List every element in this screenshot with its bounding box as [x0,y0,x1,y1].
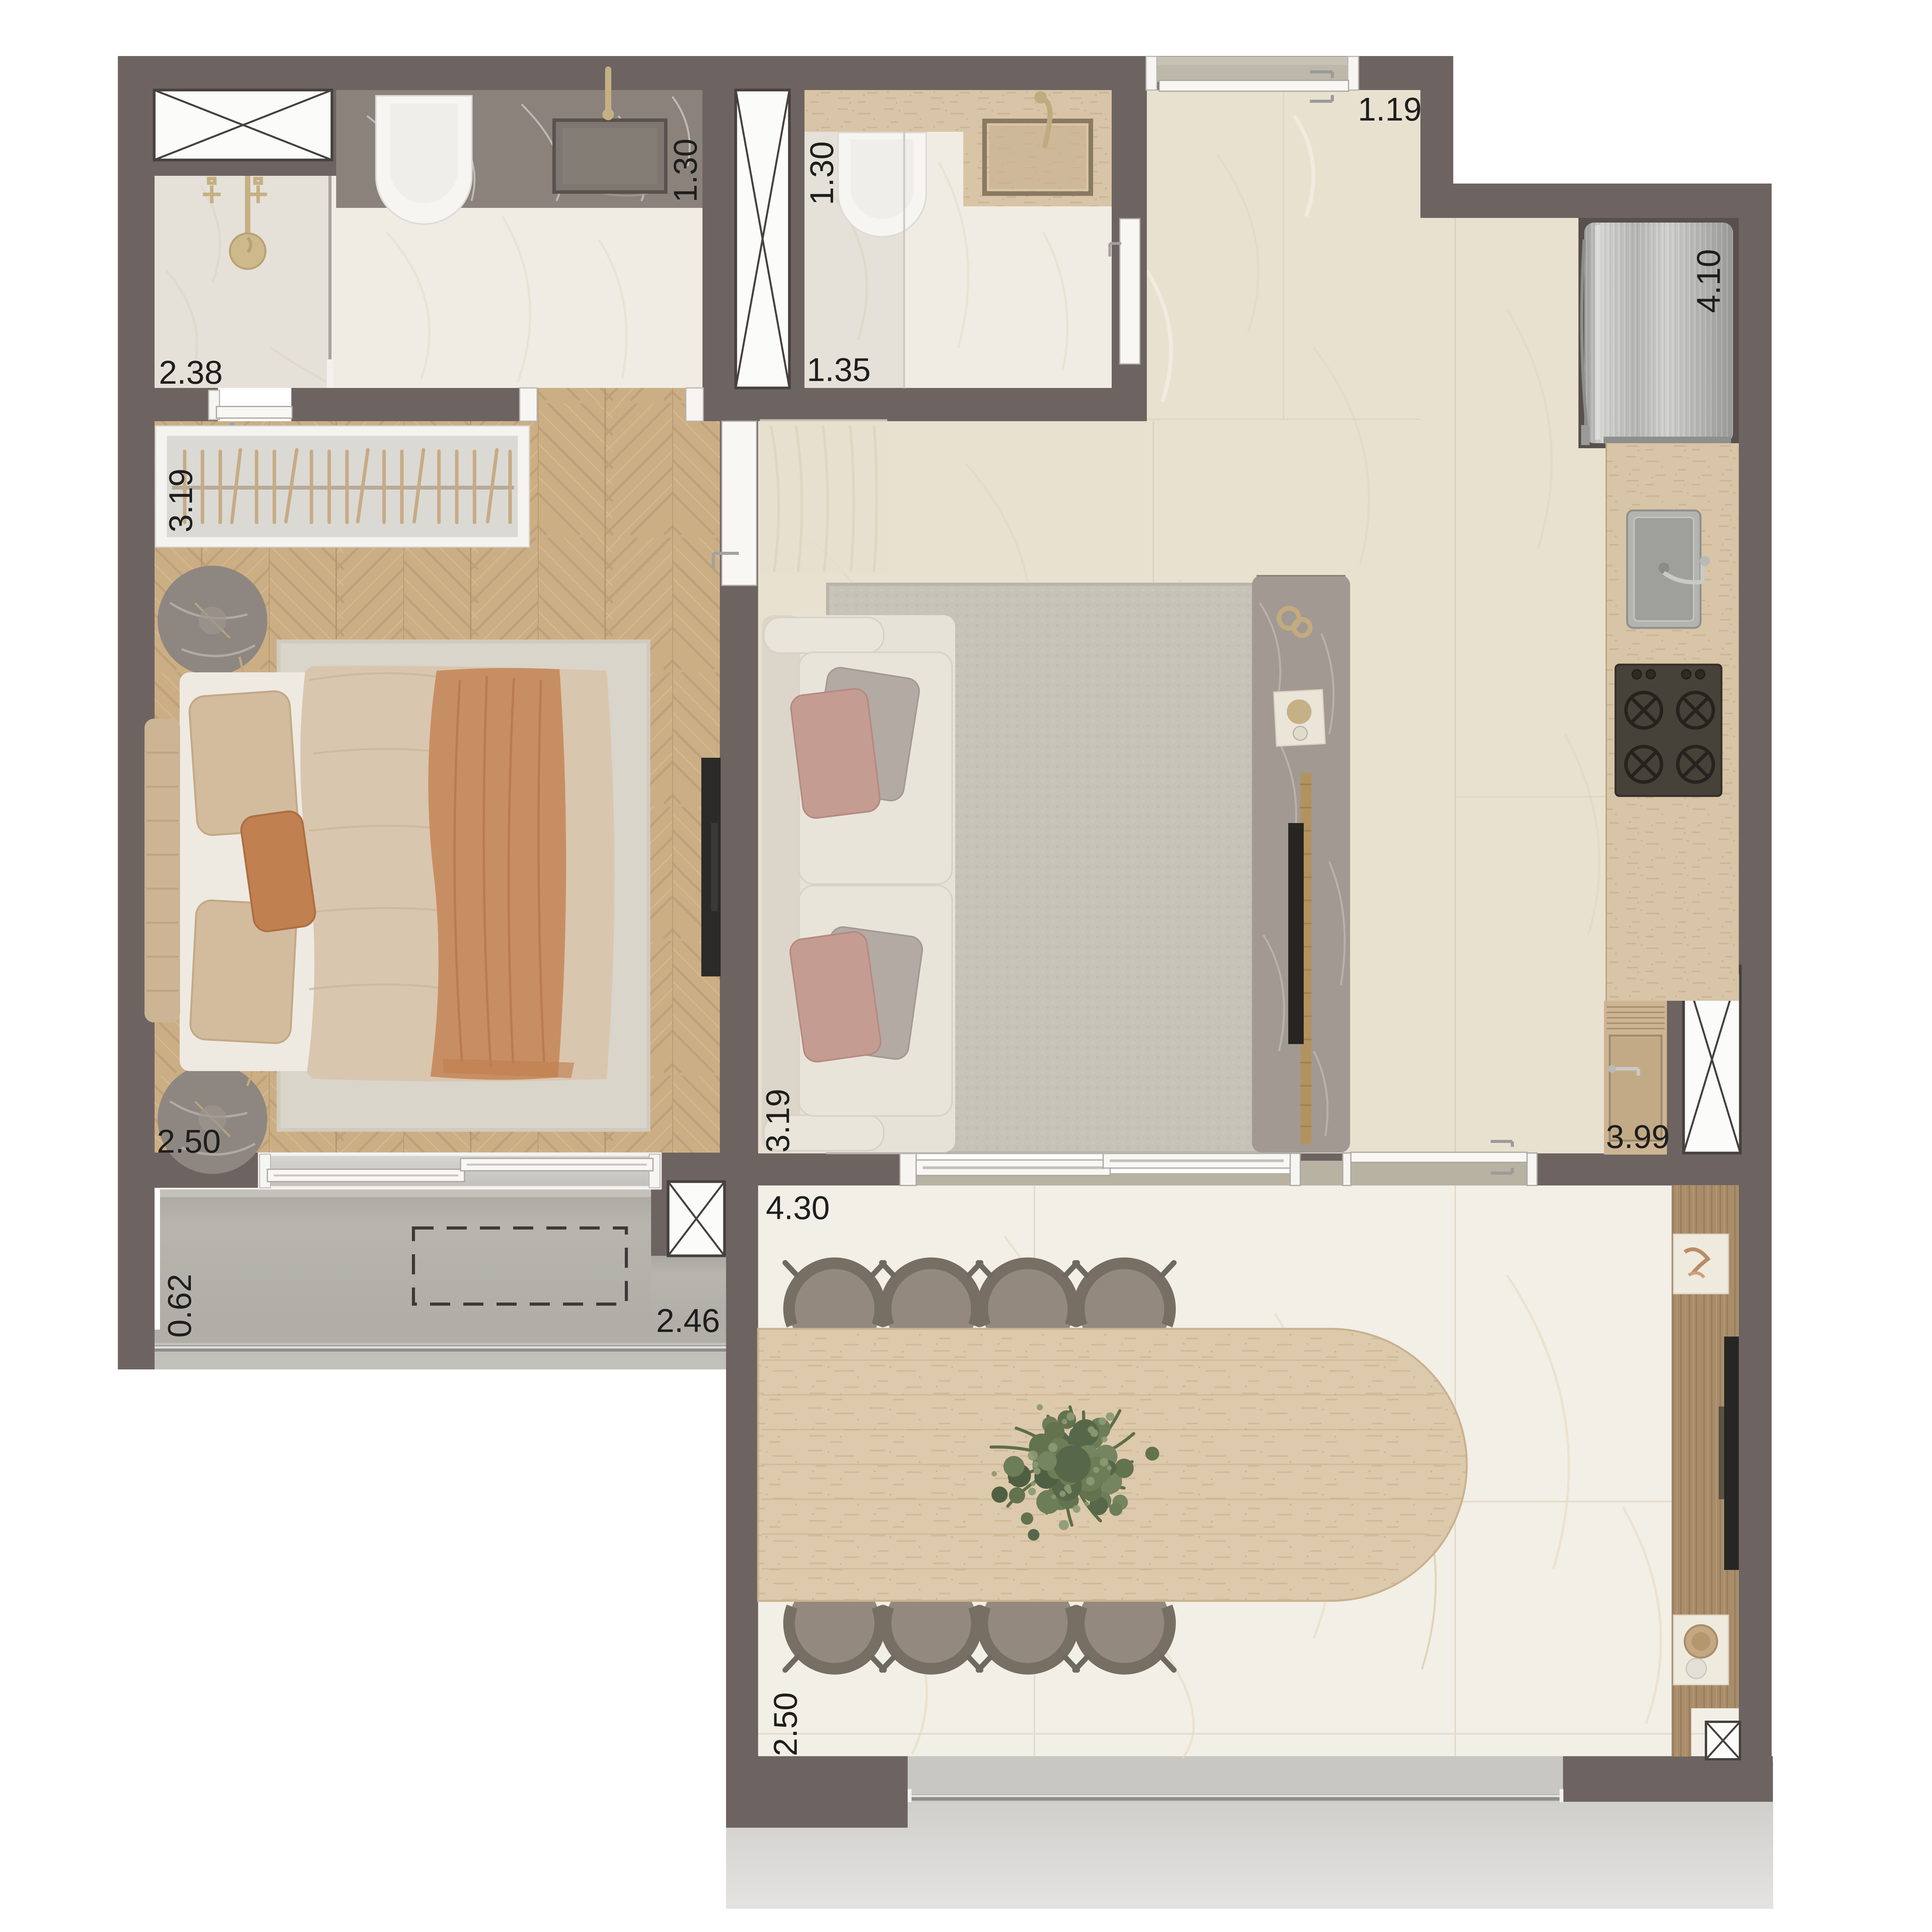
svg-text:3.99: 3.99 [1606,1119,1670,1155]
svg-text:2.38: 2.38 [159,354,223,391]
svg-text:3.19: 3.19 [760,1089,796,1153]
svg-text:2.46: 2.46 [656,1303,720,1339]
svg-text:2.50: 2.50 [767,1692,804,1756]
svg-text:2.50: 2.50 [157,1123,221,1160]
svg-text:1.30: 1.30 [804,141,840,205]
svg-text:1.35: 1.35 [807,352,871,388]
svg-text:3.19: 3.19 [163,469,199,532]
svg-text:1.19: 1.19 [1358,91,1422,128]
svg-text:4.30: 4.30 [766,1190,830,1226]
svg-text:4.10: 4.10 [1690,249,1727,313]
svg-text:1.30: 1.30 [667,139,704,202]
svg-text:0.62: 0.62 [162,1274,198,1338]
